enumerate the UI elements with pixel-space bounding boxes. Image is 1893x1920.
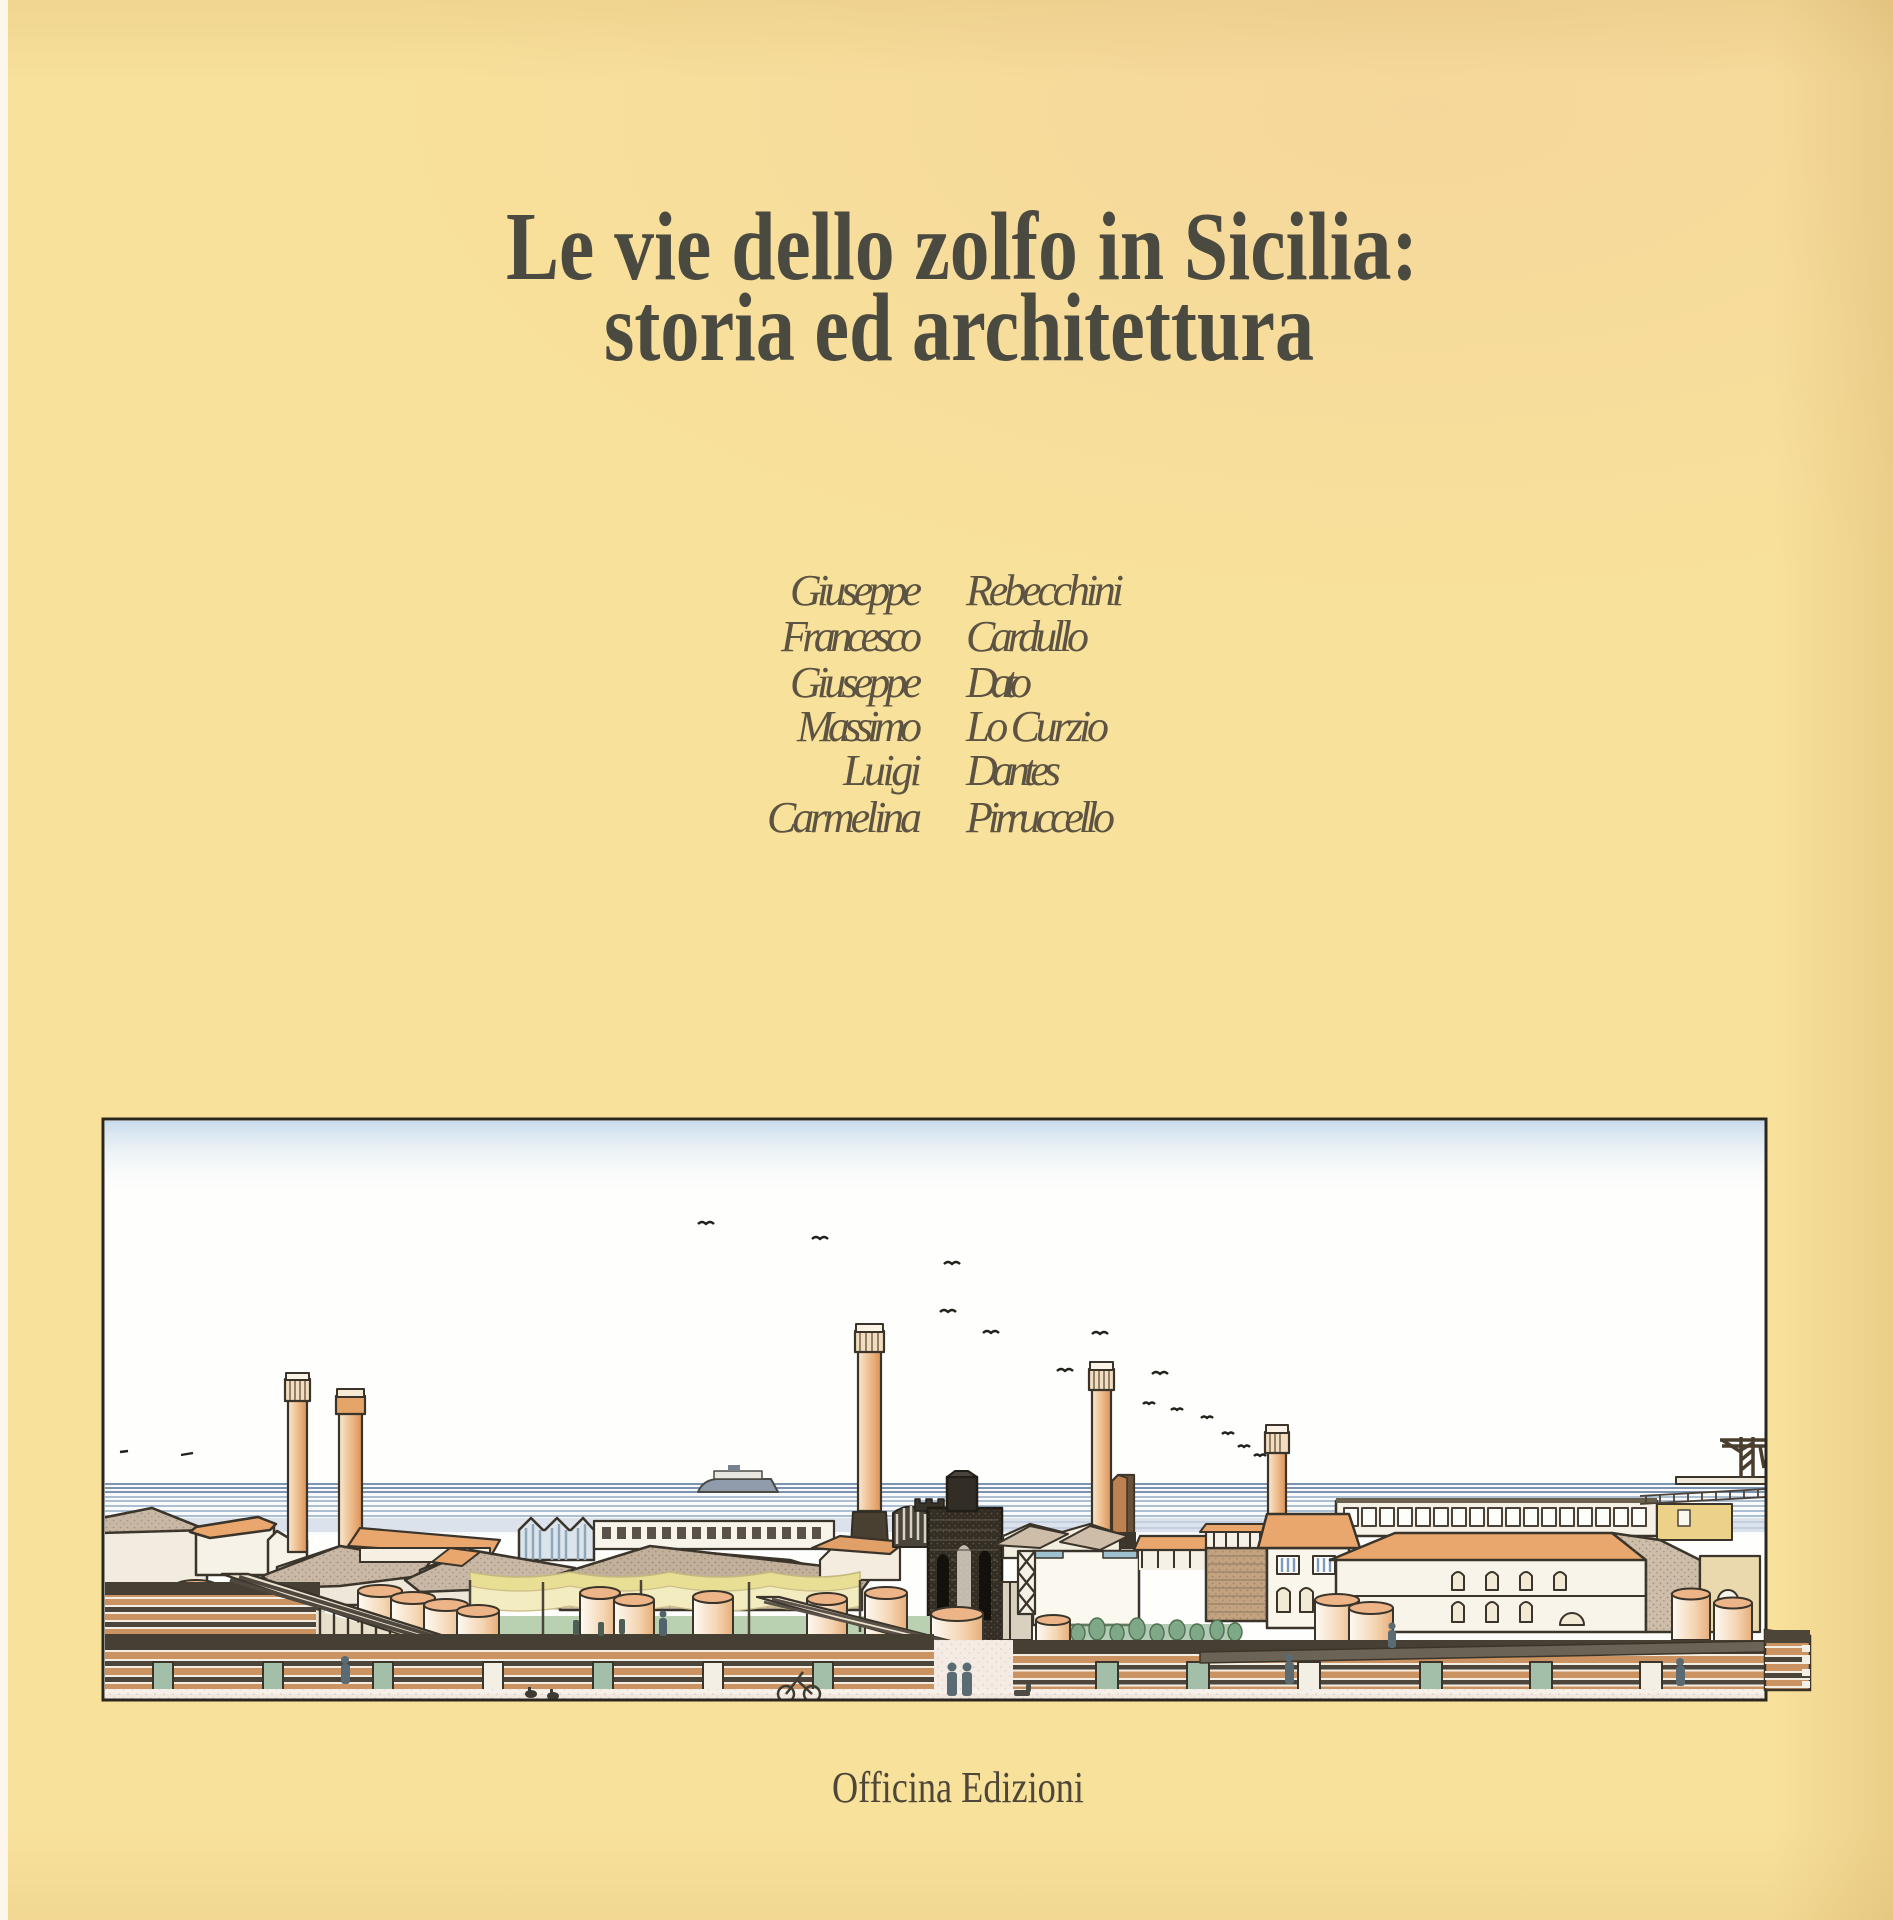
svg-text:Francesco: Francesco	[780, 612, 922, 661]
svg-text:Dato: Dato	[965, 658, 1032, 707]
svg-text:Cardullo: Cardullo	[966, 612, 1089, 661]
svg-text:Giuseppe: Giuseppe	[790, 658, 922, 707]
svg-text:Dantes: Dantes	[965, 746, 1061, 795]
svg-text:Luigi: Luigi	[842, 746, 922, 795]
svg-text:Carmelina: Carmelina	[767, 793, 922, 842]
svg-text:Lo Curzio: Lo Curzio	[965, 702, 1109, 751]
svg-text:Pirruccello: Pirruccello	[965, 793, 1115, 842]
svg-text:Massimo: Massimo	[796, 702, 922, 751]
svg-text:storia ed architettura: storia ed architettura	[604, 274, 1314, 381]
svg-text:Giuseppe: Giuseppe	[790, 566, 922, 615]
svg-text:Rebecchini: Rebecchini	[965, 566, 1124, 615]
svg-text:Officina Edizioni: Officina Edizioni	[832, 1763, 1084, 1812]
